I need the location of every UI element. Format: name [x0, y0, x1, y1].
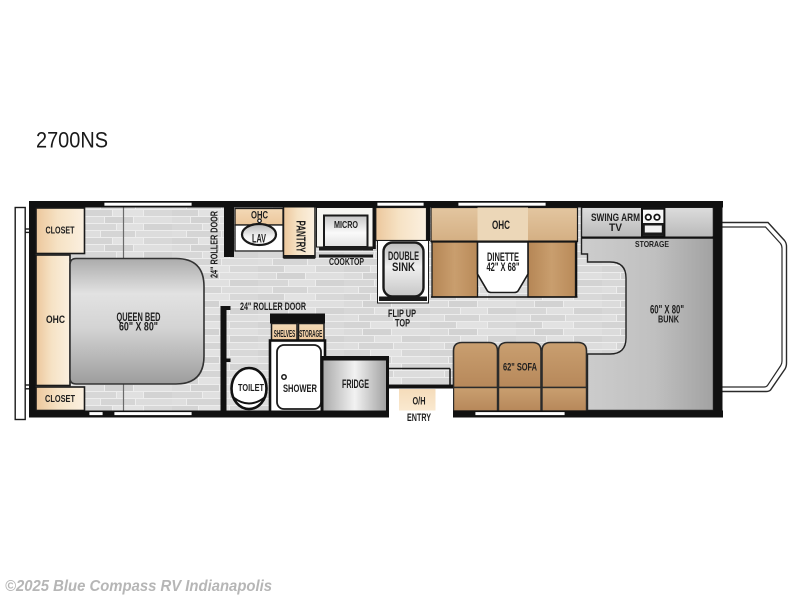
- svg-text:TOILET: TOILET: [238, 383, 264, 394]
- svg-text:CLOSET: CLOSET: [46, 225, 75, 237]
- svg-text:42" X 68": 42" X 68": [487, 260, 520, 274]
- svg-text:TV: TV: [609, 222, 623, 234]
- svg-text:SHELVES: SHELVES: [274, 329, 296, 340]
- svg-text:24" ROLLER DOOR: 24" ROLLER DOOR: [240, 301, 306, 313]
- svg-text:SHOWER: SHOWER: [283, 383, 317, 395]
- svg-text:24" ROLLER DOOR: 24" ROLLER DOOR: [210, 211, 221, 278]
- svg-text:STORAGE: STORAGE: [299, 329, 322, 340]
- svg-text:FRIDGE: FRIDGE: [342, 379, 369, 391]
- svg-text:COOKTOP: COOKTOP: [329, 256, 364, 268]
- svg-text:60" X 80": 60" X 80": [119, 320, 158, 334]
- svg-text:O/H: O/H: [413, 396, 426, 408]
- svg-text:ENTRY: ENTRY: [407, 412, 431, 424]
- svg-text:STORAGE: STORAGE: [635, 239, 669, 249]
- svg-text:TOP: TOP: [395, 318, 410, 330]
- svg-text:PANTRY: PANTRY: [294, 221, 308, 253]
- svg-text:BUNK: BUNK: [658, 314, 679, 326]
- svg-text:LAV: LAV: [252, 232, 266, 246]
- svg-text:CLOSET: CLOSET: [45, 393, 75, 405]
- svg-text:OHC: OHC: [492, 218, 510, 232]
- svg-text:SINK: SINK: [392, 260, 415, 274]
- svg-text:MICRO: MICRO: [334, 219, 358, 231]
- svg-text:©2025 Blue Compass RV Indianap: ©2025 Blue Compass RV Indianapolis: [5, 578, 272, 595]
- svg-text:62" SOFA: 62" SOFA: [503, 362, 537, 374]
- svg-text:2700NS: 2700NS: [36, 128, 108, 153]
- svg-text:OHC: OHC: [46, 314, 65, 326]
